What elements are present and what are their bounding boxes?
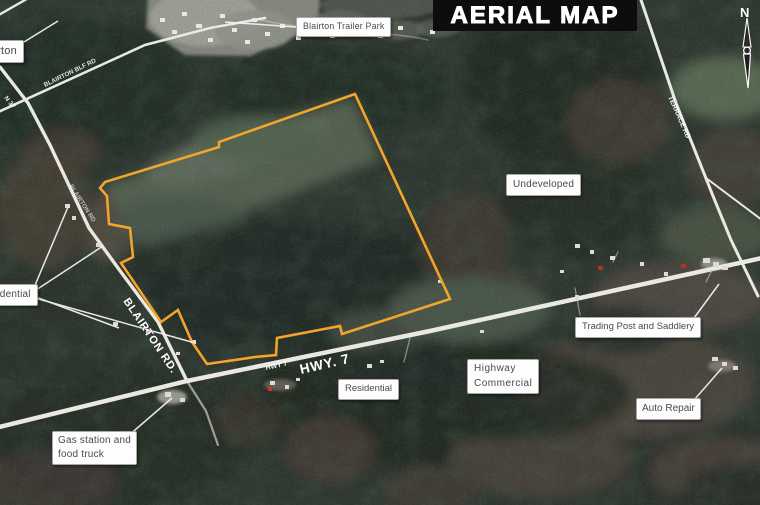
svg-text:N: N [740,5,749,20]
